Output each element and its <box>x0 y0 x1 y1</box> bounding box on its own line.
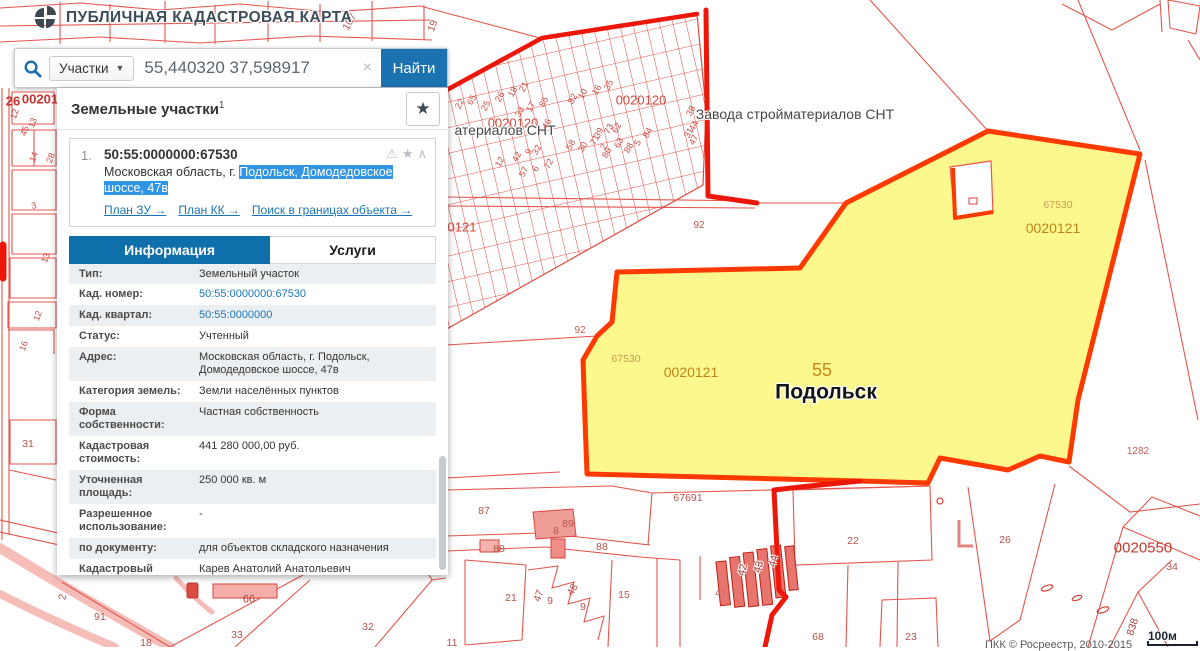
result-links: План ЗУ →План КК →Поиск в границах объек… <box>104 203 425 217</box>
info-label: Категория земель: <box>69 381 197 402</box>
search-input[interactable] <box>134 58 353 78</box>
info-label: по документу: <box>69 538 197 559</box>
info-table: Тип:Земельный участокКад. номер:50:55:00… <box>69 264 436 576</box>
info-value: Учтенный <box>197 326 436 347</box>
info-value: 250 000 кв. м <box>197 470 436 504</box>
map-misc <box>937 498 1197 645</box>
search-icon <box>15 59 49 78</box>
info-row: Адрес:Московская область, г. Подольск, Д… <box>69 347 436 381</box>
result-count: 1 <box>219 100 225 111</box>
map-scale-label: 100м <box>1148 630 1177 642</box>
info-label: Кадастровая стоимость: <box>69 436 197 470</box>
info-value: Частная собственность <box>197 402 436 436</box>
map-attribution: ПКК © Росреестр, 2010-2015 <box>985 640 1132 651</box>
info-label: Адрес: <box>69 347 197 381</box>
result-cadastral-number: 50:55:0000000:67530 <box>104 147 425 162</box>
panel-title: Земельные участки1 <box>71 100 224 118</box>
info-label: Уточненная площадь: <box>69 470 197 504</box>
search-bar: Участки ▼ × Найти <box>14 48 448 88</box>
info-label: Кадастровый инженер: <box>69 559 197 575</box>
info-row: Кадастровая стоимость:441 280 000,00 руб… <box>69 436 436 470</box>
info-value: Московская область, г. Подольск, Домодед… <box>197 347 436 381</box>
info-row: Разрешенное использование:- <box>69 504 436 538</box>
info-label: Кад. номер: <box>69 284 197 305</box>
info-value: для объектов складского назначения <box>197 538 436 559</box>
app-title: ПУБЛИЧНАЯ КАДАСТРОВАЯ КАРТА <box>66 9 352 27</box>
favorites-star-button[interactable]: ★ <box>406 92 440 126</box>
info-label: Тип: <box>69 264 197 285</box>
result-link[interactable]: План ЗУ → <box>104 203 166 217</box>
star-icon[interactable]: ★ <box>402 146 414 162</box>
tab-information[interactable]: Информация <box>69 236 270 264</box>
info-row: Статус:Учтенный <box>69 326 436 347</box>
rosreestr-logo-icon <box>34 7 56 29</box>
result-icons: ⚠★∧ <box>386 146 427 162</box>
result-index: 1. <box>81 148 92 163</box>
info-value: 441 280 000,00 руб. <box>197 436 436 470</box>
warning-icon[interactable]: ⚠ <box>386 146 398 162</box>
info-row: Тип:Земельный участок <box>69 264 436 285</box>
result-card[interactable]: 1. 50:55:0000000:67530 ⚠★∧ Московская об… <box>69 138 436 227</box>
info-row: Уточненная площадь:250 000 кв. м <box>69 470 436 504</box>
info-row: Категория земель:Земли населённых пункто… <box>69 381 436 402</box>
collapse-icon[interactable]: ∧ <box>417 146 427 162</box>
info-row: Кад. номер:50:55:0000000:67530 <box>69 284 436 305</box>
info-label: Разрешенное использование: <box>69 504 197 538</box>
info-label: Кад. квартал: <box>69 305 197 326</box>
panel-header: Земельные участки1 ★ <box>57 88 448 130</box>
search-category-label: Участки <box>59 61 109 76</box>
panel-scrollbar[interactable] <box>439 456 446 570</box>
result-link[interactable]: План КК → <box>178 203 240 217</box>
panel-tabs: ИнформацияУслуги <box>69 236 436 264</box>
info-label: Форма собственности: <box>69 402 197 436</box>
info-row: Кадастровый инженер:Карев Анатолий Анато… <box>69 559 436 575</box>
info-label: Статус: <box>69 326 197 347</box>
info-value: Земли населённых пунктов <box>197 381 436 402</box>
info-value[interactable]: 50:55:0000000:67530 <box>197 284 436 305</box>
search-category-dropdown[interactable]: Участки ▼ <box>49 56 134 81</box>
chevron-down-icon: ▼ <box>116 63 125 73</box>
info-value: Карев Анатолий Анатольевич <box>197 559 436 575</box>
info-row: Форма собственности:Частная собственност… <box>69 402 436 436</box>
results-panel: Земельные участки1 ★ 1. 50:55:0000000:67… <box>57 88 448 575</box>
info-row: по документу:для объектов складского наз… <box>69 538 436 559</box>
info-row: Кад. квартал:50:55:0000000 <box>69 305 436 326</box>
tab-services[interactable]: Услуги <box>270 236 436 264</box>
info-value: - <box>197 504 436 538</box>
clear-search-icon[interactable]: × <box>354 59 381 77</box>
info-value: Земельный участок <box>197 264 436 285</box>
info-value[interactable]: 50:55:0000000 <box>197 305 436 326</box>
result-address: Московская область, г. Подольск, Домодед… <box>104 164 394 197</box>
result-link[interactable]: Поиск в границах объекта → <box>252 203 412 217</box>
find-button[interactable]: Найти <box>381 49 447 87</box>
app-header: ПУБЛИЧНАЯ КАДАСТРОВАЯ КАРТА <box>34 7 352 29</box>
